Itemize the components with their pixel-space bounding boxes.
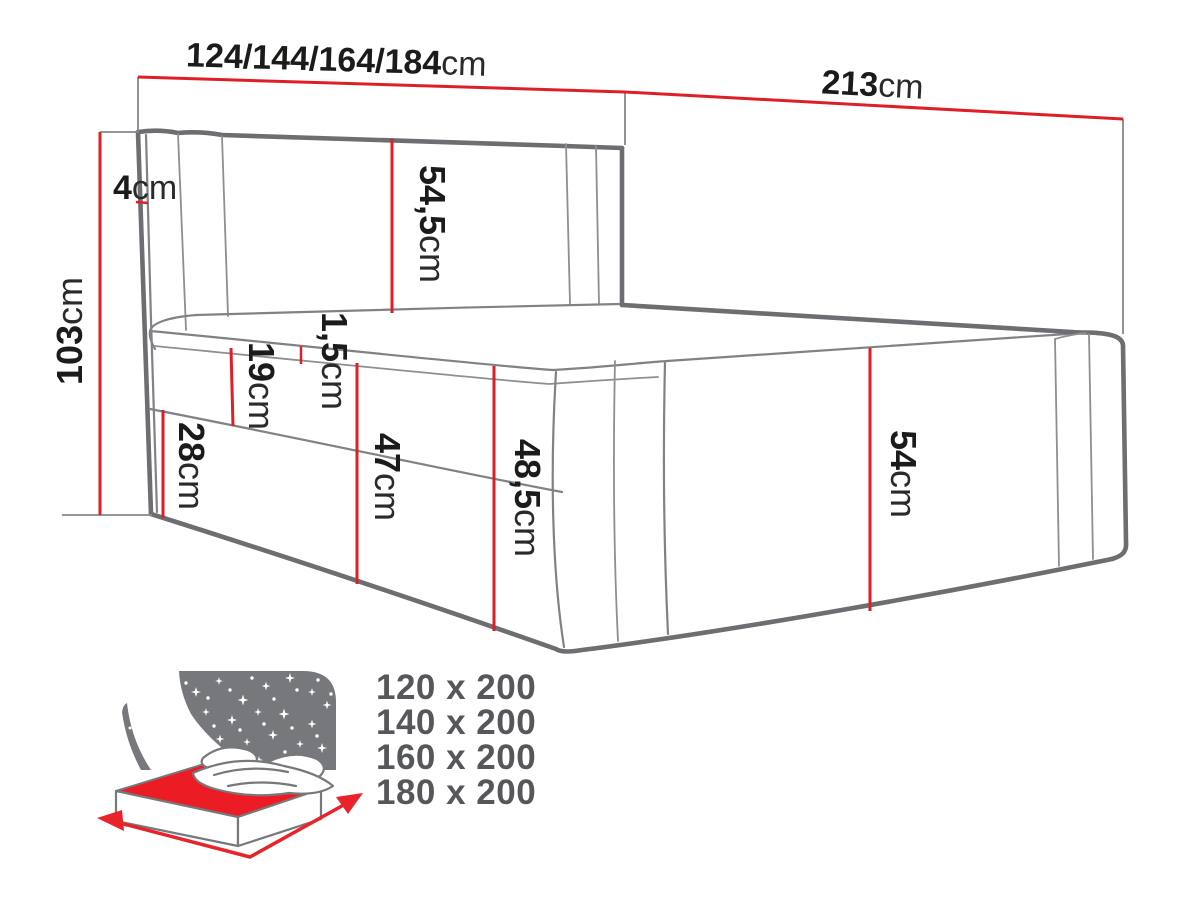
- far-corner-seam-2: [1089, 334, 1093, 559]
- bed-base: [151, 305, 1126, 651]
- dimension-labels: 124/144/164/184cm 213cm 4cm 103cm 54,5cm…: [49, 36, 925, 557]
- bed-dimension-diagram-page: 124/144/164/184cm 213cm 4cm 103cm 54,5cm…: [0, 0, 1200, 900]
- near-corner-edge: [553, 372, 564, 647]
- mattress-back-edge: [196, 304, 620, 315]
- headboard-seam-right-2: [596, 146, 599, 304]
- night-sky-shape: [179, 671, 336, 770]
- near-corner-seam-1: [614, 361, 618, 641]
- near-corner-seam-2: [664, 362, 668, 634]
- dimension-line-mattress: [231, 348, 233, 426]
- label-topper-thickness: 1,5cm: [314, 312, 355, 410]
- size-option-3: 160 x 200: [376, 738, 536, 777]
- label-headboard-thickness: 4cm: [113, 169, 177, 207]
- headboard-seam-right-1: [566, 144, 570, 304]
- bed-outline: [138, 131, 1126, 652]
- size-option-1: 120 x 200: [376, 668, 536, 707]
- available-sizes-list: 120 x 200 140 x 200 160 x 200 180 x 200: [376, 668, 536, 812]
- label-total-height: 103cm: [49, 277, 90, 385]
- extension-lines: [62, 77, 1123, 515]
- far-corner-seam-1: [1055, 339, 1059, 566]
- mattress-top-front-edge: [150, 331, 1082, 370]
- label-length: 213cm: [821, 63, 925, 106]
- label-headboard-panel-height: 54,5cm: [412, 165, 453, 283]
- label-foot-height: 54cm: [883, 430, 924, 518]
- label-corner-height: 48,5cm: [507, 439, 548, 557]
- icon-arrowhead-right: [336, 793, 363, 814]
- size-option-2: 140 x 200: [376, 703, 536, 742]
- headboard-seam-left-2: [222, 136, 228, 316]
- icon-arrowhead-left: [97, 810, 124, 831]
- label-mattress-height: 19cm: [241, 342, 282, 430]
- mattress: [150, 304, 1082, 647]
- headboard-seam-left-1: [178, 134, 186, 330]
- size-option-4: 180 x 200: [376, 773, 536, 812]
- far-top-edge: [622, 305, 1097, 333]
- label-width-options: 124/144/164/184cm: [186, 36, 488, 83]
- bed-size-icon: [97, 671, 363, 857]
- label-side-height: 47cm: [367, 433, 408, 521]
- label-base-height-head: 28cm: [171, 422, 212, 510]
- foot-bottom-edge: [556, 559, 1112, 651]
- bed-dimension-diagram: 124/144/164/184cm 213cm 4cm 103cm 54,5cm…: [0, 0, 1200, 900]
- right-edge: [1097, 333, 1126, 559]
- headboard-top-edge: [138, 131, 622, 148]
- dimension-line-width-and-length: [138, 77, 1123, 119]
